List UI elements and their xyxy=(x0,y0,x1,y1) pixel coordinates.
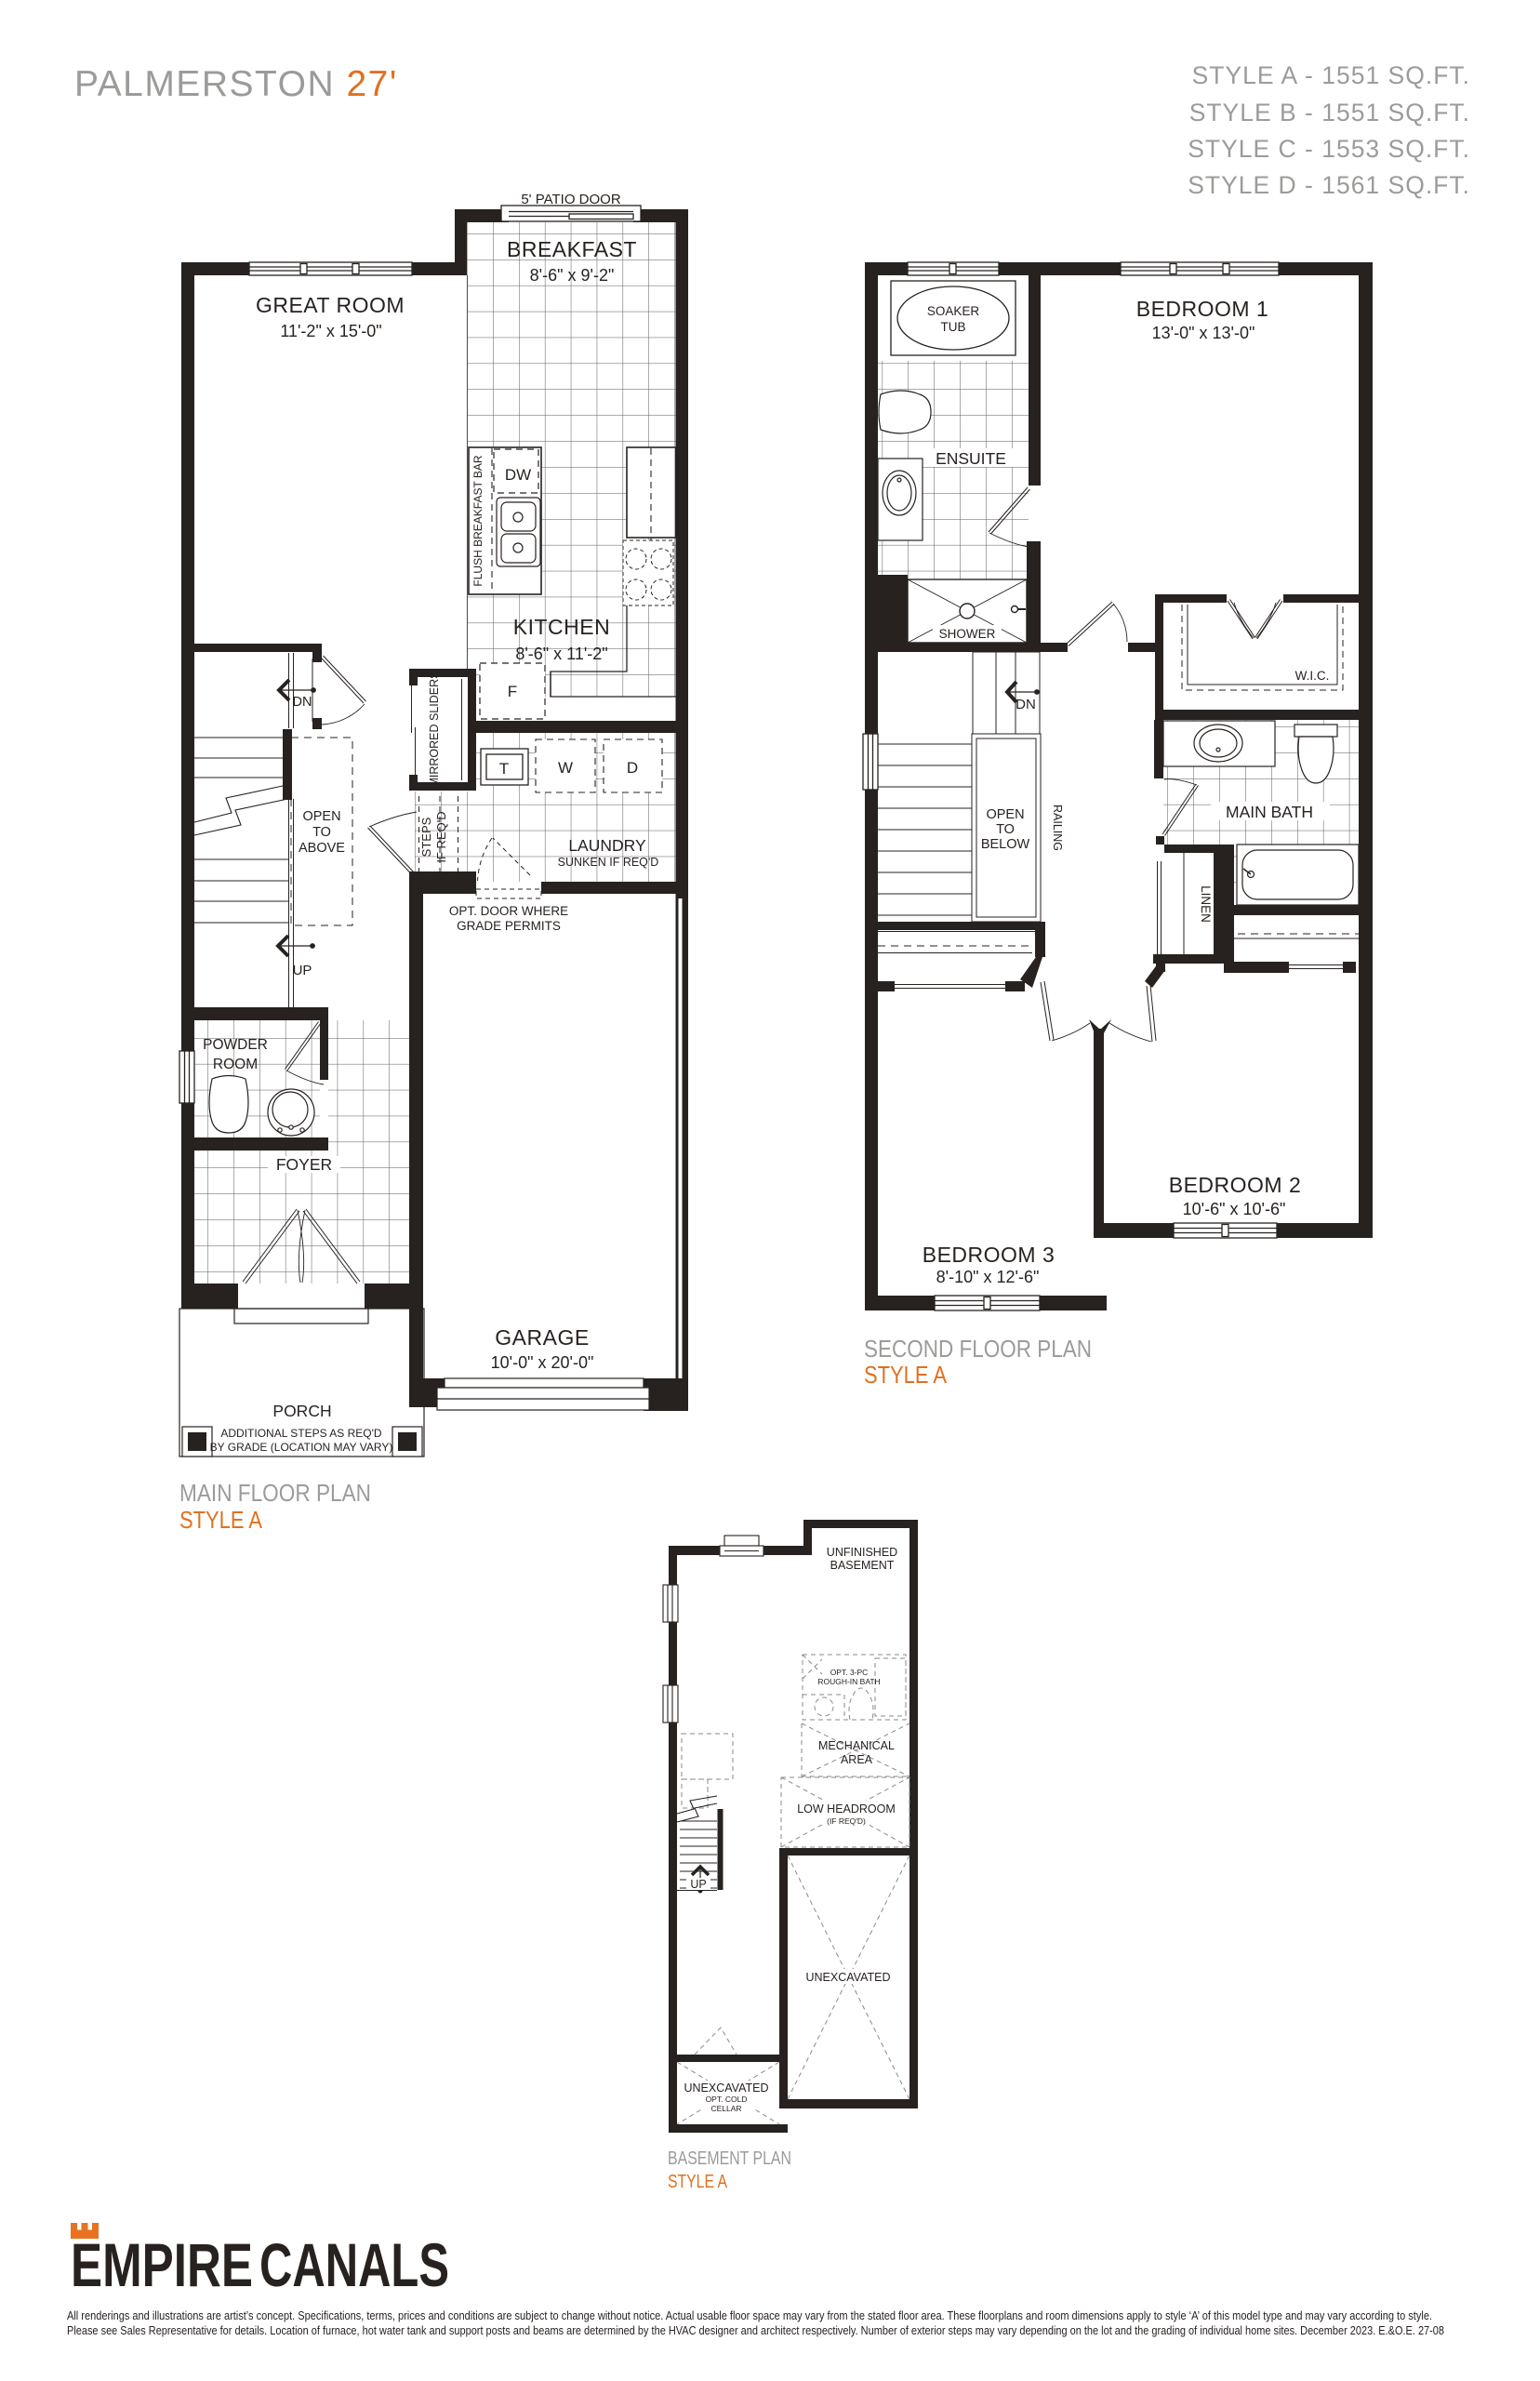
svg-text:OPEN: OPEN xyxy=(986,807,1024,822)
svg-text:ADDITIONAL STEPS AS REQ'D: ADDITIONAL STEPS AS REQ'D xyxy=(220,1427,382,1440)
svg-text:IF REQ'D: IF REQ'D xyxy=(434,811,448,862)
svg-text:BASEMENT PLAN: BASEMENT PLAN xyxy=(668,2148,791,2169)
svg-text:8'-6" x 11'-2": 8'-6" x 11'-2" xyxy=(515,645,607,663)
svg-text:STYLE A: STYLE A xyxy=(179,1506,263,1534)
svg-text:All renderings and illustratio: All renderings and illustrations are art… xyxy=(67,2308,1432,2322)
svg-text:OPT. 3-PC: OPT. 3-PC xyxy=(830,1668,869,1677)
svg-text:SHOWER: SHOWER xyxy=(939,627,996,641)
svg-text:BEDROOM 3: BEDROOM 3 xyxy=(923,1243,1055,1267)
svg-text:SUNKEN IF REQ'D: SUNKEN IF REQ'D xyxy=(558,856,659,869)
svg-text:10'-6" x 10'-6": 10'-6" x 10'-6" xyxy=(1183,1200,1286,1218)
svg-text:8'-6" x 9'-2": 8'-6" x 9'-2" xyxy=(530,266,615,285)
svg-text:AREA: AREA xyxy=(841,1753,873,1766)
svg-text:RAILING: RAILING xyxy=(1051,805,1064,851)
svg-text:UP: UP xyxy=(690,1878,706,1891)
svg-text:MAIN BATH: MAIN BATH xyxy=(1226,803,1313,821)
svg-text:TUB: TUB xyxy=(941,320,966,334)
svg-text:FLUSH BREAKFAST BAR: FLUSH BREAKFAST BAR xyxy=(471,455,485,586)
svg-text:UNEXCAVATED: UNEXCAVATED xyxy=(806,1971,891,1984)
svg-text:STYLE C - 1553 SQ.FT.: STYLE C - 1553 SQ.FT. xyxy=(1188,135,1470,163)
svg-text:PORCH: PORCH xyxy=(272,1402,331,1420)
svg-text:LOW HEADROOM: LOW HEADROOM xyxy=(797,1802,896,1816)
svg-text:STYLE D - 1561 SQ.FT.: STYLE D - 1561 SQ.FT. xyxy=(1188,171,1470,199)
svg-text:MIRRORED SLIDERS: MIRRORED SLIDERS xyxy=(428,671,441,787)
svg-text:BEDROOM 2: BEDROOM 2 xyxy=(1169,1173,1302,1197)
svg-text:OPT. COLD: OPT. COLD xyxy=(706,2095,748,2104)
svg-text:5' PATIO DOOR: 5' PATIO DOOR xyxy=(521,192,620,207)
svg-text:(IF REQ'D): (IF REQ'D) xyxy=(827,1816,866,1826)
svg-text:Please see Sales Representativ: Please see Sales Representative for deta… xyxy=(67,2323,1444,2337)
svg-text:D: D xyxy=(627,759,638,777)
svg-text:TO: TO xyxy=(996,822,1015,837)
svg-text:11'-2" x 15'-0": 11'-2" x 15'-0" xyxy=(280,322,381,340)
svg-text:EMPIRE: EMPIRE xyxy=(71,2230,253,2299)
svg-text:CANALS: CANALS xyxy=(259,2230,449,2299)
svg-text:BY GRADE (LOCATION MAY VARY): BY GRADE (LOCATION MAY VARY) xyxy=(210,1441,393,1454)
svg-text:DN: DN xyxy=(1016,697,1036,712)
svg-text:SECOND FLOOR PLAN: SECOND FLOOR PLAN xyxy=(864,1335,1092,1363)
svg-text:BREAKFAST: BREAKFAST xyxy=(507,237,637,261)
svg-text:10'-0" x 20'-0": 10'-0" x 20'-0" xyxy=(491,1353,594,1372)
svg-text:UNFINISHED: UNFINISHED xyxy=(827,1546,897,1559)
svg-text:STYLE B - 1551 SQ.FT.: STYLE B - 1551 SQ.FT. xyxy=(1189,99,1470,126)
svg-text:F: F xyxy=(508,683,517,700)
svg-text:MECHANICAL: MECHANICAL xyxy=(818,1739,895,1752)
svg-text:UP: UP xyxy=(293,963,312,978)
svg-text:TO: TO xyxy=(312,825,331,840)
svg-text:OPEN: OPEN xyxy=(302,809,340,824)
svg-text:KITCHEN: KITCHEN xyxy=(513,615,610,639)
svg-text:DN: DN xyxy=(293,695,312,710)
svg-text:ROOM: ROOM xyxy=(213,1057,258,1072)
svg-text:W: W xyxy=(558,759,573,777)
svg-text:MAIN FLOOR PLAN: MAIN FLOOR PLAN xyxy=(179,1479,371,1507)
svg-text:W.I.C.: W.I.C. xyxy=(1295,669,1330,683)
svg-text:LAUNDRY: LAUNDRY xyxy=(568,836,646,855)
svg-text:GARAGE: GARAGE xyxy=(495,1325,589,1350)
svg-text:ENSUITE: ENSUITE xyxy=(936,449,1006,468)
svg-text:FOYER: FOYER xyxy=(276,1155,332,1174)
svg-text:ABOVE: ABOVE xyxy=(299,841,345,856)
svg-text:STEPS: STEPS xyxy=(419,817,433,857)
svg-text:CELLAR: CELLAR xyxy=(710,2104,741,2113)
svg-text:T: T xyxy=(499,760,509,778)
svg-text:BASEMENT: BASEMENT xyxy=(830,1559,895,1572)
svg-text:PALMERSTON 27': PALMERSTON 27' xyxy=(74,64,398,104)
svg-text:LINEN: LINEN xyxy=(1199,885,1213,923)
svg-text:13'-0" x 13'-0": 13'-0" x 13'-0" xyxy=(1152,324,1255,342)
svg-text:8'-10" x 12'-6": 8'-10" x 12'-6" xyxy=(936,1268,1040,1286)
svg-text:BELOW: BELOW xyxy=(981,837,1030,852)
svg-text:SOAKER: SOAKER xyxy=(927,304,980,318)
svg-text:STYLE A: STYLE A xyxy=(864,1361,948,1389)
svg-text:UNEXCAVATED: UNEXCAVATED xyxy=(684,2082,769,2095)
svg-text:STYLE A: STYLE A xyxy=(668,2171,727,2192)
svg-text:OPT. DOOR WHERE: OPT. DOOR WHERE xyxy=(449,904,568,918)
svg-text:ROUGH-IN BATH: ROUGH-IN BATH xyxy=(817,1677,880,1686)
svg-text:DW: DW xyxy=(505,466,531,484)
svg-text:GRADE PERMITS: GRADE PERMITS xyxy=(457,919,561,933)
svg-text:POWDER: POWDER xyxy=(203,1037,268,1053)
svg-text:STYLE A - 1551 SQ.FT.: STYLE A - 1551 SQ.FT. xyxy=(1192,61,1470,89)
svg-text:GREAT ROOM: GREAT ROOM xyxy=(256,293,405,317)
svg-text:BEDROOM 1: BEDROOM 1 xyxy=(1136,297,1269,321)
